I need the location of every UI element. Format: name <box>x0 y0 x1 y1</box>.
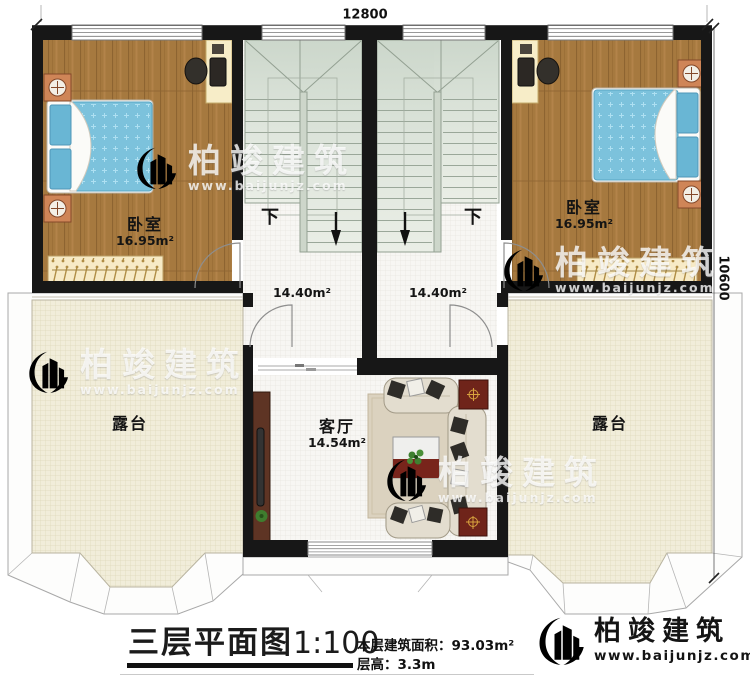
floor-height-note: 层高：3.3m <box>357 659 435 673</box>
watermark-logo-icon <box>386 457 428 503</box>
watermark-3: 柏竣建筑 www.baijunjz.com <box>28 348 248 397</box>
side-table-bottom-right <box>459 508 487 536</box>
living-room-area: 14.54m² <box>308 437 366 450</box>
terrace-left-label: 露台 <box>112 416 148 432</box>
window-stair-right <box>403 25 485 40</box>
nightstand-right-top <box>678 60 705 87</box>
bedroom-left-label: 卧室 <box>127 217 163 233</box>
plan-title: 三层平面图1:100 <box>128 628 379 659</box>
title-thin-rule <box>120 674 534 675</box>
watermark-company: 柏竣建筑 <box>80 348 248 381</box>
company-website: www.baijunjz.com <box>594 649 750 664</box>
watermark-1: 柏竣建筑 www.baijunjz.com <box>136 144 356 193</box>
tv-cabinet <box>253 392 270 545</box>
desk-left <box>206 40 232 103</box>
watermark-website: www.baijunjz.com <box>188 180 356 193</box>
title-underline <box>127 663 353 668</box>
company-logo: 柏竣建筑 www.baijunjz.com <box>538 615 750 667</box>
watermark-logo-icon <box>28 349 70 395</box>
bedroom-right-area: 16.95m² <box>555 218 613 231</box>
terrace-left-floor <box>32 300 243 587</box>
floor-area-note: 本层建筑面积：93.03m² <box>357 640 514 654</box>
terrace-right-floor <box>508 300 712 583</box>
hall-living-opening-threshold <box>258 364 357 371</box>
watermark-website: www.baijunjz.com <box>80 384 248 397</box>
watermark-website: www.baijunjz.com <box>555 282 723 295</box>
bedroom-left-area: 16.95m² <box>116 235 174 248</box>
desk-right <box>512 40 538 103</box>
company-logo-icon <box>538 615 586 667</box>
stair-down-label-right: 下 <box>464 209 482 227</box>
plan-title-text: 三层平面图 <box>128 628 293 659</box>
dimension-top-label: 12800 <box>342 9 387 22</box>
watermark-logo-icon <box>503 247 545 293</box>
chair-left <box>185 58 207 84</box>
hall-left-area: 14.40m² <box>273 287 331 300</box>
stair-down-label-left: 下 <box>261 209 279 227</box>
watermark-company: 柏竣建筑 <box>438 456 606 489</box>
window-bedroom-right <box>548 25 673 40</box>
watermark-company: 柏竣建筑 <box>188 144 356 177</box>
watermark-company: 柏竣建筑 <box>555 246 723 279</box>
hall-right-area: 14.40m² <box>409 287 467 300</box>
side-table-top-right <box>459 380 488 409</box>
window-bedroom-left <box>72 25 202 40</box>
company-name: 柏竣建筑 <box>594 618 750 646</box>
floor-plan-drawing <box>0 0 750 684</box>
watermark-4: 柏竣建筑 www.baijunjz.com <box>386 456 606 505</box>
living-room-south-window <box>308 542 432 555</box>
watermark-2: 柏竣建筑 www.baijunjz.com <box>503 246 723 295</box>
floor-plan-page: 12800 10600 卧室 16.95m² 卧室 16.95m² 下 下 14… <box>0 0 750 684</box>
nightstand-left-top <box>44 74 71 101</box>
window-stair-left <box>262 25 345 40</box>
nightstand-left-bottom <box>44 195 71 222</box>
watermark-website: www.baijunjz.com <box>438 492 606 505</box>
terrace-right-label: 露台 <box>592 416 628 432</box>
chair-right <box>537 58 559 84</box>
nightstand-right-bottom <box>678 181 705 208</box>
bedroom-right-label: 卧室 <box>566 200 602 216</box>
bed-right <box>592 88 700 182</box>
wardrobe-left <box>48 256 163 284</box>
living-room-label: 客厅 <box>319 419 355 435</box>
watermark-logo-icon <box>136 145 178 191</box>
